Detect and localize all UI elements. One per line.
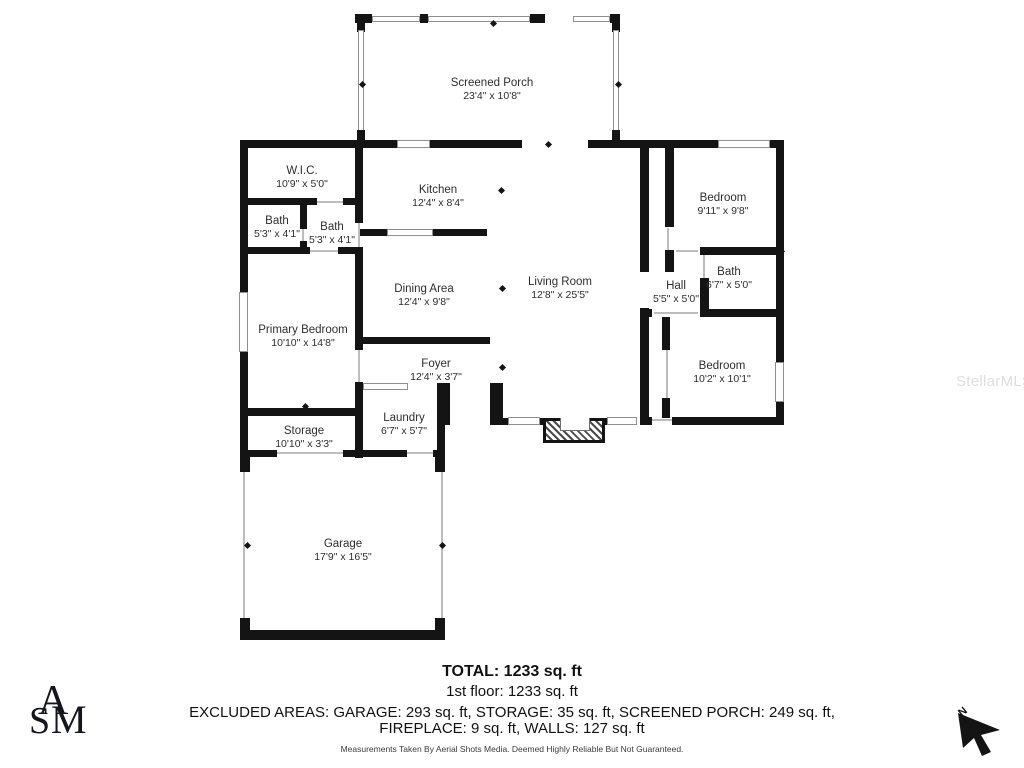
room-dimensions: 9'11" x 9'8" (698, 205, 749, 218)
wall (240, 352, 248, 458)
room-name: Bedroom (698, 192, 749, 205)
room-name: Dining Area (394, 283, 453, 296)
wall-opening (652, 419, 672, 421)
first-floor-area-text: 1st floor: 1233 sq. ft (0, 683, 1024, 700)
room-name: Screened Porch (451, 77, 533, 90)
north-arrow-icon (945, 698, 1009, 760)
room-dimensions: 12'4" x 9'8" (394, 296, 453, 309)
wall (433, 229, 487, 236)
window (387, 229, 433, 236)
room-label: Bath5'3" x 4'1" (254, 215, 300, 241)
room-dimensions: 6'7" x 5'7" (381, 425, 427, 438)
room-label: W.I.C.10'9" x 5'0" (276, 165, 328, 191)
wall (300, 205, 307, 229)
room-name: Bath (254, 215, 300, 228)
room-name: Garage (314, 538, 372, 551)
wall (240, 198, 317, 205)
logo-letter-m: M (51, 700, 87, 740)
room-label: Bath5'3" x 4'1" (309, 221, 355, 247)
wall (640, 147, 649, 272)
wall (640, 417, 652, 425)
room-dimensions: 12'4" x 8'4" (412, 197, 464, 210)
wall (240, 140, 397, 148)
room-label: Hall5'5" x 5'0" (653, 280, 699, 306)
dimension-tick (545, 141, 552, 148)
wall (430, 140, 522, 148)
wall (700, 247, 784, 255)
room-name: Hall (653, 280, 699, 293)
room-label: Laundry6'7" x 5'7" (381, 412, 427, 438)
room-name: Laundry (381, 412, 427, 425)
north-arrow: N (945, 698, 1009, 760)
wall-opening (358, 223, 360, 250)
wall-opening (317, 201, 343, 203)
wall (343, 450, 407, 457)
wall-opening (310, 250, 338, 252)
wall (357, 337, 490, 344)
wall-opening (277, 452, 343, 454)
window (775, 362, 784, 402)
wall (240, 140, 248, 292)
logo-letter-s: S (29, 702, 50, 740)
dimension-tick (498, 187, 505, 194)
wall (240, 247, 310, 254)
room-label: Living Room12'8" x 25'5" (528, 276, 592, 302)
window (363, 383, 408, 390)
room-label: Foyer12'4" x 3'7" (410, 358, 462, 384)
room-name: Foyer (410, 358, 462, 371)
room-name: Bedroom (693, 360, 751, 373)
window (718, 140, 770, 148)
room-name: W.I.C. (276, 165, 328, 178)
room-name: Kitchen (412, 184, 464, 197)
room-label: Bedroom9'11" x 9'8" (698, 192, 749, 218)
wall (640, 308, 649, 425)
wall (355, 140, 363, 223)
room-dimensions: 5'5" x 5'0" (653, 293, 699, 306)
wall (355, 382, 363, 458)
wall-opening (666, 350, 668, 398)
wall-opening (676, 250, 698, 252)
aerial-shots-media-logo: A S M (24, 678, 104, 758)
wall (240, 450, 250, 472)
wall-opening (302, 229, 304, 241)
disclaimer-text: Measurements Taken By Aerial Shots Media… (0, 744, 1024, 754)
wall (665, 147, 674, 227)
wall (355, 250, 363, 350)
fireplace-firebox (560, 418, 590, 431)
window (508, 417, 540, 425)
excluded-areas-line1: EXCLUDED AREAS: GARAGE: 293 sq. ft, STOR… (0, 704, 1024, 721)
wall (700, 309, 784, 317)
wall (435, 450, 445, 472)
room-name: Living Room (528, 276, 592, 289)
room-label: Primary Bedroom10'10" x 14'8" (258, 324, 347, 350)
wall-opening (407, 452, 433, 454)
dimension-tick (244, 542, 251, 549)
window (239, 292, 248, 352)
room-dimensions: 12'4" x 3'7" (410, 371, 462, 384)
dimension-tick (499, 364, 506, 371)
wall (665, 250, 674, 272)
window (397, 140, 430, 148)
wall-opening (654, 312, 698, 314)
floor-plan-page: Screened Porch23'4" x 10'8"W.I.C.10'9" x… (0, 0, 1024, 768)
room-label: Bedroom10'2" x 10'1" (693, 360, 751, 386)
mls-watermark: StellarMLS (956, 373, 1024, 390)
wall (240, 408, 363, 416)
window (372, 16, 420, 22)
dimension-tick (499, 285, 506, 292)
room-name: Bath (309, 221, 355, 234)
total-area-text: TOTAL: 1233 sq. ft (0, 663, 1024, 681)
wall (640, 309, 652, 317)
room-dimensions: 10'10" x 14'8" (258, 337, 347, 350)
wall (662, 398, 670, 418)
room-dimensions: 5'3" x 4'1" (309, 234, 355, 247)
window (573, 16, 610, 22)
room-dimensions: 6'7" x 5'0" (706, 279, 752, 292)
wall (530, 14, 545, 23)
wall (672, 417, 784, 425)
room-label: Kitchen12'4" x 8'4" (412, 184, 464, 210)
room-name: Bath (706, 266, 752, 279)
wall (437, 383, 450, 425)
room-dimensions: 10'10" x 3'3" (275, 438, 333, 451)
wall (662, 317, 670, 350)
window (428, 16, 530, 22)
wall (588, 140, 718, 148)
wall (360, 229, 387, 236)
room-label: Dining Area12'4" x 9'8" (394, 283, 453, 309)
wall-opening (703, 255, 705, 278)
room-dimensions: 23'4" x 10'8" (451, 90, 533, 103)
window (607, 417, 637, 425)
room-dimensions: 10'9" x 5'0" (276, 178, 328, 191)
wall (338, 247, 363, 254)
room-dimensions: 12'8" x 25'5" (528, 289, 592, 302)
room-name: Storage (275, 425, 333, 438)
room-label: Screened Porch23'4" x 10'8" (451, 77, 533, 103)
wall (496, 418, 508, 425)
wall-opening (667, 228, 669, 250)
room-label: Garage17'9" x 16'5" (314, 538, 372, 564)
room-dimensions: 5'3" x 4'1" (254, 228, 300, 241)
wall (420, 14, 428, 23)
room-label: Storage10'10" x 3'3" (275, 425, 333, 451)
wall-opening (358, 350, 360, 382)
room-dimensions: 10'2" x 10'1" (693, 373, 751, 386)
room-dimensions: 17'9" x 16'5" (314, 551, 372, 564)
room-name: Primary Bedroom (258, 324, 347, 337)
room-label: Bath6'7" x 5'0" (706, 266, 752, 292)
excluded-areas-line2: FIREPLACE: 9 sq. ft, WALLS: 127 sq. ft (0, 720, 1024, 737)
